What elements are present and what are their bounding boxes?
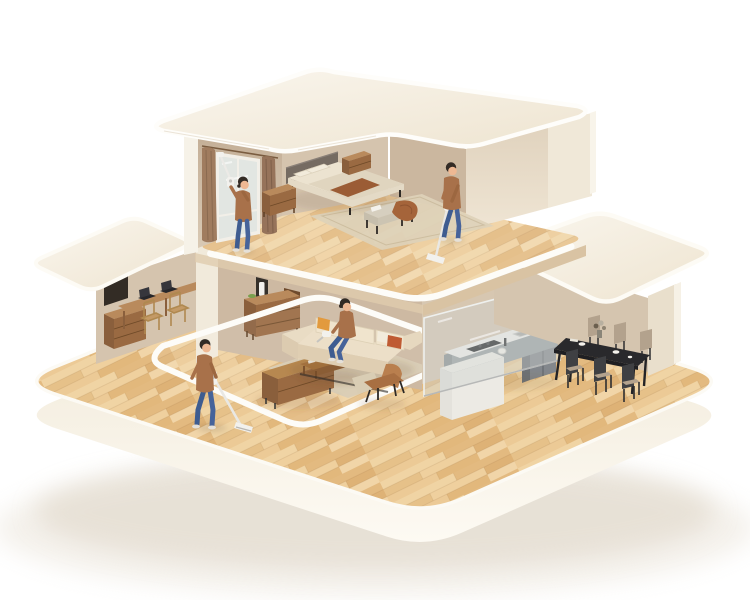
left-exterior-wall	[184, 131, 198, 255]
person-torso	[196, 354, 214, 392]
curtain-left	[202, 147, 217, 242]
person-leg	[247, 221, 248, 249]
person-leg	[210, 390, 213, 425]
right-support-wall	[648, 284, 676, 376]
plate	[579, 342, 586, 345]
plate	[613, 350, 620, 353]
cup	[628, 356, 632, 358]
right-arm-wall	[548, 113, 592, 208]
dollhouse-illustration	[0, 0, 750, 600]
scene-svg	[0, 0, 750, 600]
person-leg	[457, 210, 459, 238]
person-leg	[237, 221, 240, 248]
